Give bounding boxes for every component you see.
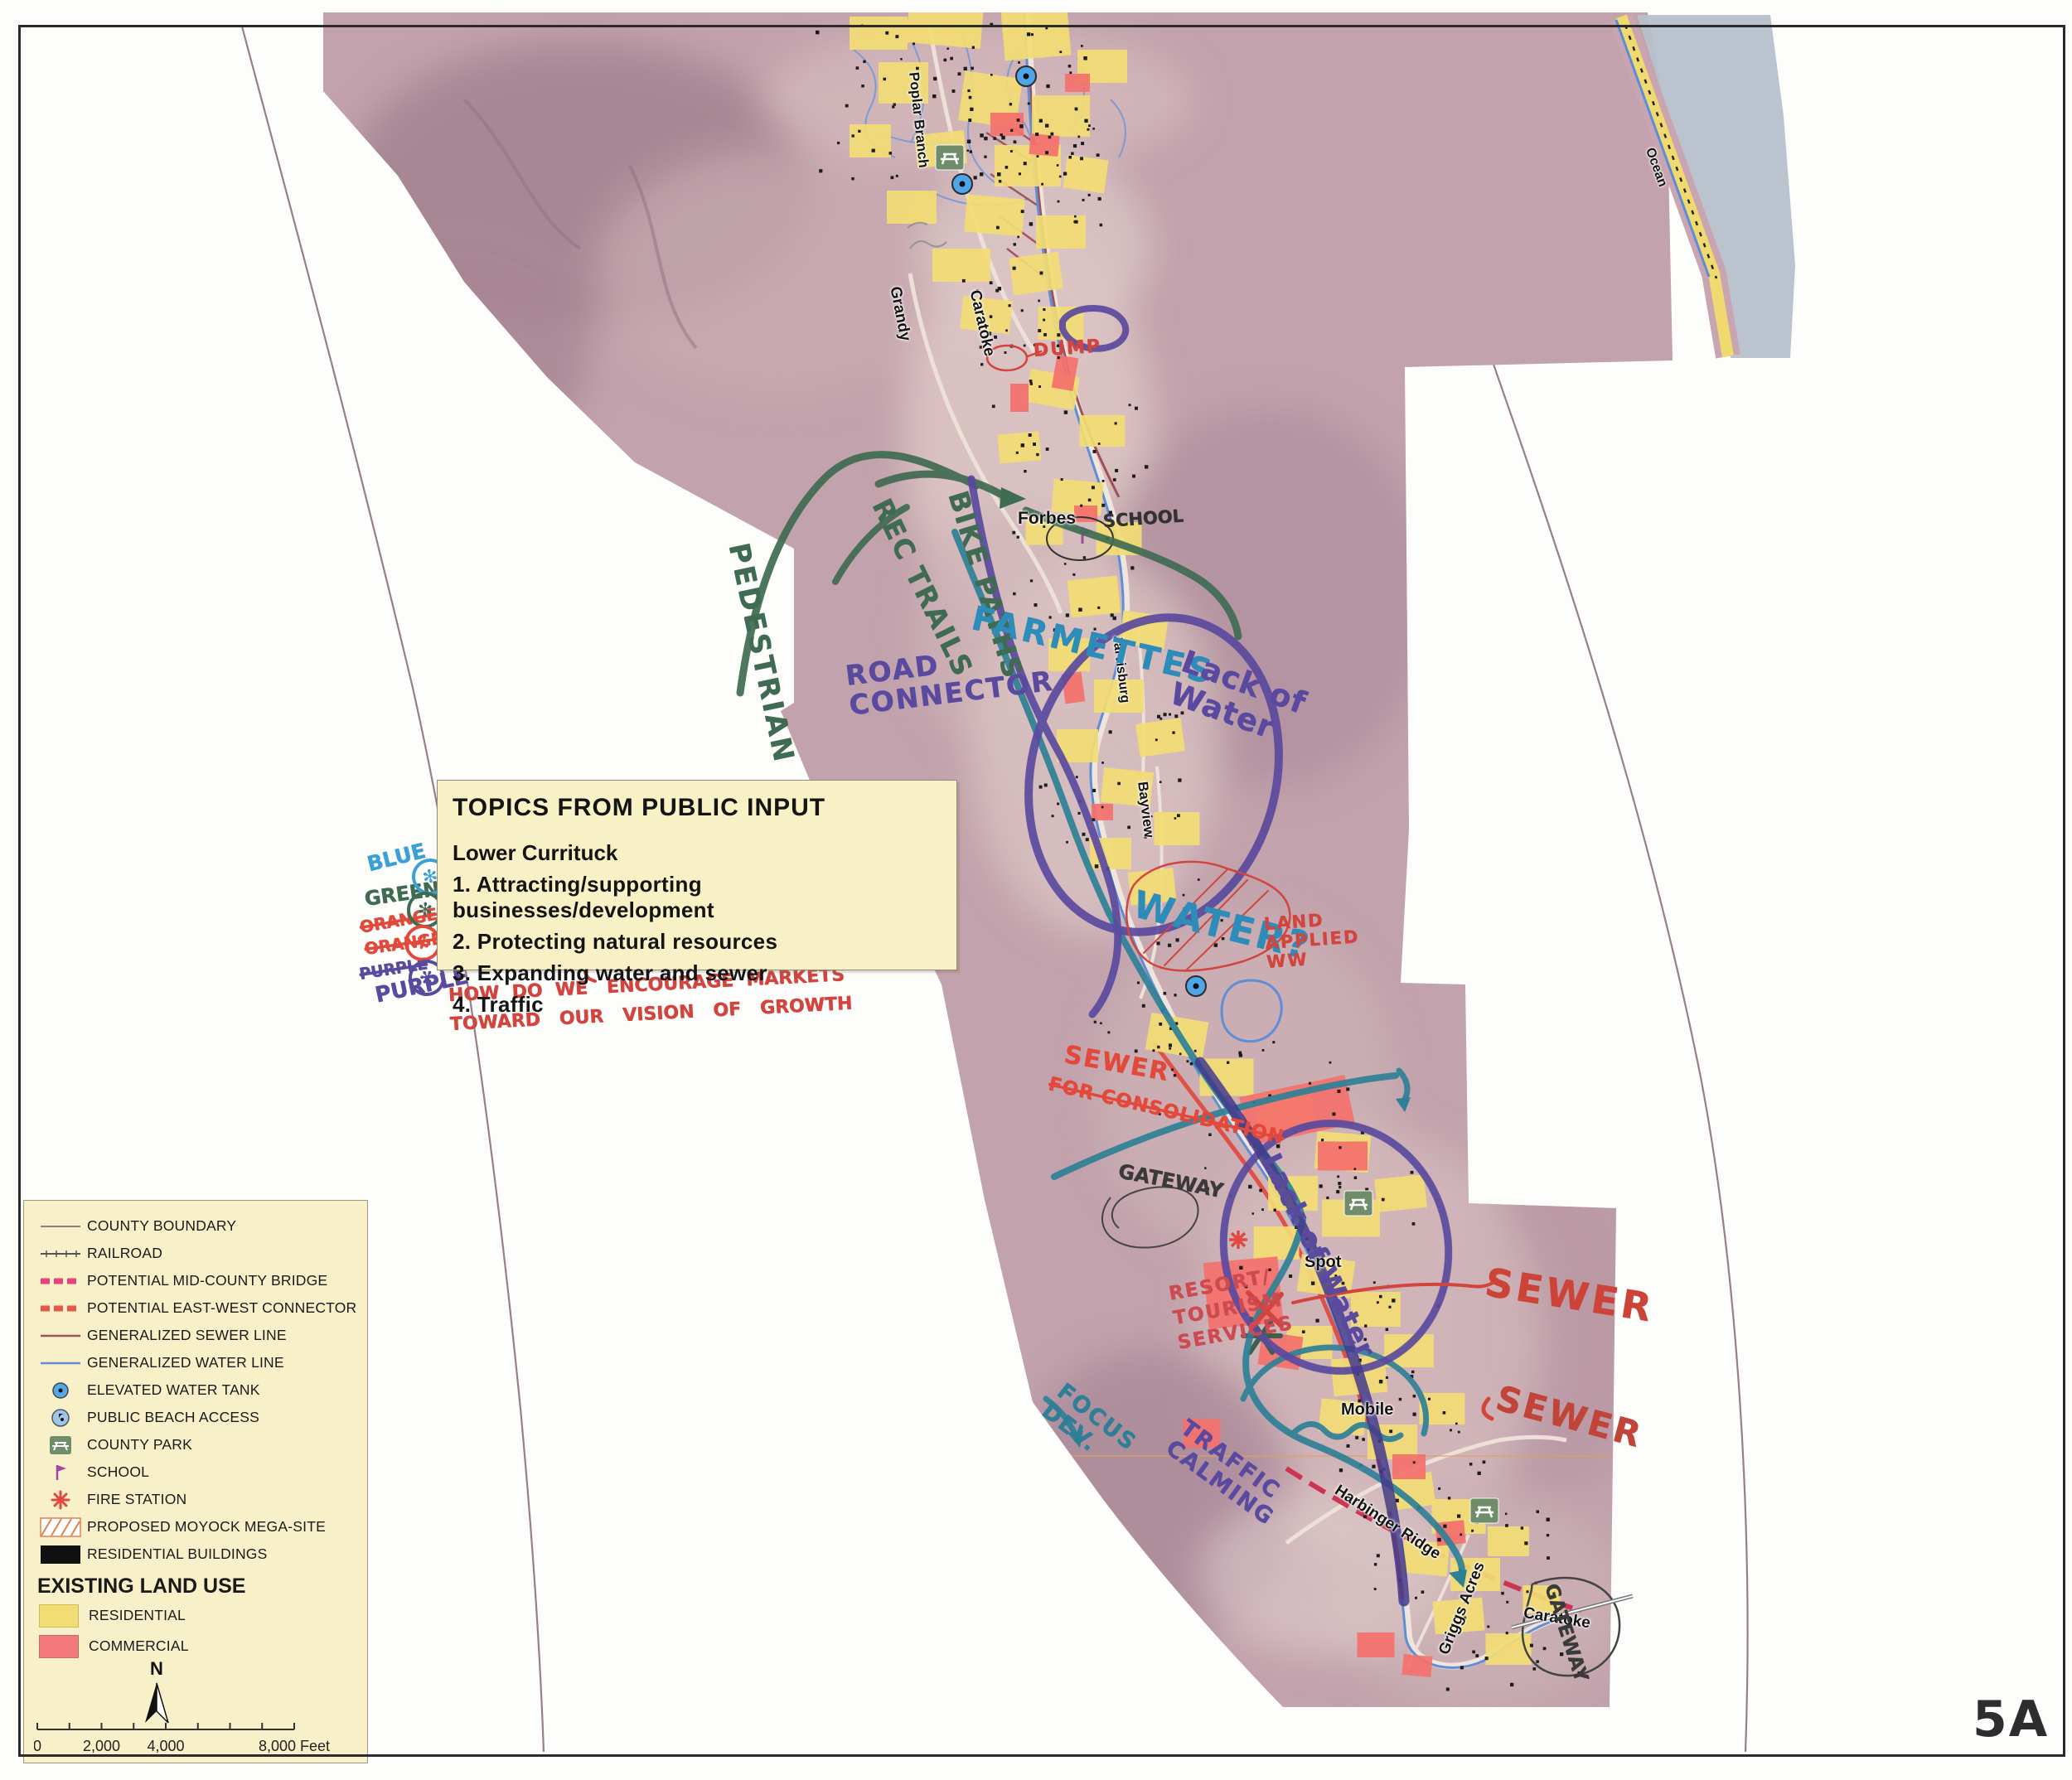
scanned-planning-map-page: ForbesSpotMobileHarbinger RidgeGriggs Ac…	[0, 0, 2072, 1780]
north-label: N	[138, 1658, 175, 1680]
line-county-legend-symbol	[34, 1218, 87, 1235]
legend-label: FIRE STATION	[87, 1491, 186, 1508]
topics-item-4: 4. Traffic	[453, 992, 942, 1018]
legend-label: GENERALIZED SEWER LINE	[87, 1327, 287, 1344]
icon-fire-legend-symbol	[34, 1489, 87, 1511]
legend-label: GENERALIZED WATER LINE	[87, 1354, 284, 1371]
land-use-label: RESIDENTIAL	[89, 1607, 186, 1624]
land-use-swatch	[39, 1604, 79, 1628]
scale-bar: 02,0004,0008,000 Feet	[34, 1721, 366, 1759]
legend-row-icon-beach: PUBLIC BEACH ACCESS	[34, 1404, 367, 1431]
line-railroad-legend-symbol	[34, 1246, 87, 1262]
icon-beach-legend-symbol	[34, 1407, 87, 1429]
topics-item-1: 1. Attracting/supporting businesses/deve…	[453, 872, 942, 923]
legend-row-line-connector: POTENTIAL EAST-WEST CONNECTOR	[34, 1294, 367, 1322]
county-park-icon	[1470, 1498, 1498, 1523]
elevated-water-tank-icon	[952, 174, 972, 194]
swatch-black-legend-symbol	[34, 1545, 87, 1565]
county-park-icon	[936, 145, 964, 170]
legend-row-swatch-hatch: PROPOSED MOYOCK MEGA-SITE	[34, 1513, 367, 1541]
icon-tank-legend-symbol	[34, 1380, 87, 1401]
legend-label: POTENTIAL MID-COUNTY BRIDGE	[87, 1272, 327, 1289]
topics-item-2: 2. Protecting natural resources	[453, 929, 942, 955]
legend-row-line-county: COUNTY BOUNDARY	[34, 1212, 367, 1240]
legend-label: SCHOOL	[87, 1463, 149, 1481]
legend-row-line-sewer: GENERALIZED SEWER LINE	[34, 1322, 367, 1349]
legend-label: PROPOSED MOYOCK MEGA-SITE	[87, 1518, 326, 1536]
legend-label: ELEVATED WATER TANK	[87, 1381, 260, 1399]
county-park-icon	[1344, 1191, 1372, 1216]
land-use-label: COMMERCIAL	[89, 1637, 189, 1655]
legend-row-line-water: GENERALIZED WATER LINE	[34, 1349, 367, 1376]
annotation-land-applied-ww: LAND APPLIED WW	[1263, 908, 1362, 972]
land-use-row: COMMERCIAL	[34, 1631, 367, 1661]
legend-label: COUNTY PARK	[87, 1436, 192, 1454]
legend-row-line-bridge: POTENTIAL MID-COUNTY BRIDGE	[34, 1267, 367, 1294]
land-use-header: EXISTING LAND USE	[37, 1574, 367, 1599]
legend-label: PUBLIC BEACH ACCESS	[87, 1409, 259, 1426]
fire-station-icon	[1229, 1231, 1247, 1249]
topics-subtitle: Lower Currituck	[453, 840, 942, 866]
legend-row-icon-school: SCHOOL	[34, 1458, 367, 1486]
line-sewer-legend-symbol	[34, 1328, 87, 1344]
swatch-hatch-legend-symbol	[34, 1517, 87, 1537]
map-legend: COUNTY BOUNDARYRAILROADPOTENTIAL MID-COU…	[23, 1200, 368, 1763]
topics-title: TOPICS FROM PUBLIC INPUT	[453, 794, 942, 822]
map-label-forbes: Forbes	[1018, 509, 1076, 529]
legend-row-icon-park: COUNTY PARK	[34, 1431, 367, 1458]
line-connector-legend-symbol	[34, 1300, 87, 1317]
line-water-legend-symbol	[34, 1355, 87, 1371]
topics-item-3: 3. Expanding water and sewer	[453, 960, 942, 986]
line-bridge-legend-symbol	[34, 1273, 87, 1289]
svg-text:8,000 Feet: 8,000 Feet	[259, 1738, 330, 1754]
legend-label: RAILROAD	[87, 1245, 162, 1262]
legend-label: RESIDENTIAL BUILDINGS	[87, 1545, 268, 1563]
land-use-row: RESIDENTIAL	[34, 1600, 367, 1631]
sheet-number-label: 5A	[1973, 1691, 2049, 1749]
topics-box: TOPICS FROM PUBLIC INPUT Lower Currituck…	[437, 780, 957, 970]
map-label-mobile: Mobile	[1341, 1400, 1393, 1420]
legend-row-icon-tank: ELEVATED WATER TANK	[34, 1376, 367, 1404]
legend-row-line-railroad: RAILROAD	[34, 1240, 367, 1267]
icon-park-legend-symbol	[34, 1435, 87, 1455]
legend-label: POTENTIAL EAST-WEST CONNECTOR	[87, 1299, 356, 1317]
svg-text:2,000: 2,000	[83, 1738, 120, 1754]
legend-label: COUNTY BOUNDARY	[87, 1217, 236, 1235]
land-use-swatch	[39, 1635, 79, 1658]
svg-text:0: 0	[34, 1738, 41, 1754]
legend-row-icon-fire: FIRE STATION	[34, 1486, 367, 1513]
legend-row-swatch-black: RESIDENTIAL BUILDINGS	[34, 1541, 367, 1568]
svg-text:4,000: 4,000	[147, 1738, 184, 1754]
icon-school-legend-symbol	[34, 1463, 87, 1483]
elevated-water-tank-icon	[1016, 66, 1036, 86]
elevated-water-tank-icon	[1186, 976, 1206, 996]
